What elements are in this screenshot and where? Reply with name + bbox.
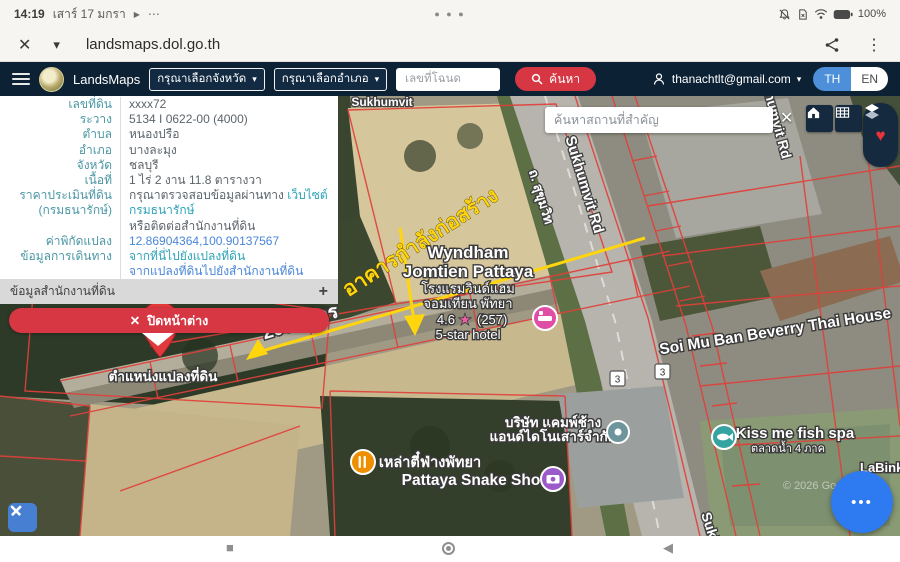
- poi-kiss-me-th: ตลาดน้ำ 4 ภาค: [751, 440, 825, 455]
- url-chevron-down-icon[interactable]: ▾: [53, 37, 60, 53]
- price-value: กรุณาตรวจสอบข้อมูลผ่านทาง เว็บไซต์กรมธนา…: [120, 188, 338, 234]
- field-value: หนองปรือ: [120, 127, 338, 142]
- field-label: เนื้อที่: [0, 173, 120, 188]
- land-office-section[interactable]: ข้อมูลสำนักงานที่ดิน +: [0, 279, 338, 304]
- field-value: ชลบุรี: [120, 158, 338, 173]
- person-icon: [652, 72, 666, 86]
- route-to-parcel-link[interactable]: จากที่นี่ไปยังแปลงที่ดิน: [129, 249, 245, 263]
- favorites-heart-icon[interactable]: ♥: [875, 127, 885, 144]
- grid-icon: [835, 105, 850, 120]
- price-label: ราคาประเมินที่ดิน (กรมธนารักษ์): [0, 188, 120, 234]
- bell-muted-icon: [778, 8, 791, 21]
- app-header: LandsMaps กรุณาเลือกจังหวัด ▾ กรุณาเลือก…: [0, 62, 900, 96]
- field-label: อำเภอ: [0, 143, 120, 158]
- status-bar: 14:19 เสาร์ 17 มกรา ▶ ⋯ ● ● ● 100%: [0, 0, 900, 28]
- camera-notch-dots: ● ● ●: [434, 9, 465, 19]
- play-icon: ▶: [134, 10, 140, 19]
- lang-en-button[interactable]: EN: [851, 67, 888, 91]
- home-nav-button[interactable]: [442, 542, 455, 555]
- field-value: 1 ไร่ 2 งาน 11.8 ตารางวา: [120, 173, 338, 188]
- parcel-info-body: เลขที่ดินxxxx72 ระวาง5134 I 0622-00 (400…: [0, 96, 338, 279]
- hotel-marker-icon: [533, 306, 557, 330]
- close-icon: ✕: [130, 313, 140, 328]
- ellipsis-icon: ⋯: [148, 7, 161, 21]
- company-marker-icon: [607, 421, 629, 443]
- poi-wyndham-th: โรงแรมวินด์แฮม: [421, 281, 515, 296]
- panel-callout-pointer: [142, 333, 174, 346]
- province-dropdown-label: กรุณาเลือกจังหวัด: [157, 70, 246, 88]
- coord-label: ค่าพิกัดแปลง: [0, 234, 120, 249]
- app-title: LandsMaps: [73, 72, 140, 87]
- lang-th-button[interactable]: TH: [813, 67, 851, 91]
- field-value: 5134 I 0622-00 (4000): [120, 112, 338, 127]
- tablet-screen: 14:19 เสาร์ 17 มกรา ▶ ⋯ ● ● ● 100% ✕ ▾ l…: [0, 0, 900, 562]
- account-email[interactable]: thanachtlt@gmail.com: [672, 72, 791, 86]
- spa-marker-icon: [712, 425, 736, 449]
- clock: 14:19: [14, 7, 45, 21]
- map-search-clear-icon[interactable]: ✕: [780, 108, 793, 128]
- close-panel-label: ปิดหน้าต่าง: [147, 311, 208, 331]
- travel-links: จากที่นี่ไปยังแปลงที่ดิน จากแปลงที่ดินไป…: [120, 249, 338, 279]
- star-icon: ★: [459, 312, 471, 327]
- map-more-button[interactable]: •••: [831, 471, 893, 533]
- parcel-info-panel: เลขที่ดินxxxx72 ระวาง5134 I 0622-00 (400…: [0, 96, 338, 346]
- language-toggle: TH EN: [813, 67, 888, 91]
- draw-tools-button[interactable]: [8, 503, 37, 532]
- map-grid-button[interactable]: [835, 105, 862, 132]
- price-text2: หรือติดต่อสำนักงานที่ดิน: [129, 219, 255, 233]
- browser-actions: ⋮: [824, 35, 882, 55]
- dol-logo: [39, 67, 64, 92]
- date-label: เสาร์ 17 มกรา: [53, 5, 126, 24]
- map-home-button[interactable]: [806, 105, 833, 132]
- chevron-down-icon: ▾: [375, 74, 380, 85]
- field-label: ระวาง: [0, 112, 120, 127]
- deed-number-input[interactable]: [396, 68, 500, 91]
- close-panel-button[interactable]: ✕ ปิดหน้าต่าง: [9, 308, 329, 333]
- battery-percent: 100%: [858, 8, 886, 20]
- poi-wyndham-type: 5-star hotel: [435, 327, 500, 342]
- share-icon[interactable]: [824, 37, 840, 53]
- draw-tools-icon: [8, 503, 24, 519]
- poi-wyndham-count: (257): [477, 312, 507, 327]
- layers-icon[interactable]: [863, 103, 881, 119]
- route-shield-number: 3: [660, 368, 666, 379]
- poi-wyndham: Jomtien Pattaya: [403, 262, 534, 281]
- field-value: xxxx72: [120, 97, 338, 112]
- field-value: บางละมุง: [120, 143, 338, 158]
- chevron-down-icon: ▾: [252, 74, 257, 85]
- poi-kiss-me: Kiss me fish spa: [736, 425, 855, 442]
- route-shield-number: 3: [615, 375, 621, 386]
- browser-bar: ✕ ▾ landsmaps.dol.go.th ⋮: [0, 28, 900, 62]
- battery-icon: [833, 9, 853, 20]
- poi-camp-chang: แอนด์ไดโนเสาร์จำกัด: [490, 427, 617, 444]
- road-label-top: Sukhumvit: [351, 96, 412, 109]
- pin-label: ตำแหน่งแปลงที่ดิน: [109, 366, 219, 384]
- sim-missing-icon: [796, 8, 809, 21]
- route-to-office-link[interactable]: จากแปลงที่ดินไปยังสำนักงานที่ดิน: [129, 264, 303, 278]
- home-icon: [806, 105, 821, 120]
- poi-wyndham-th: จอมเทียน พัทยา: [423, 296, 512, 311]
- url-text[interactable]: landsmaps.dol.go.th: [86, 36, 220, 53]
- poi-camp-chang: บริษัท แคมพ์ช้าง: [505, 414, 601, 430]
- field-label: เลขที่ดิน: [0, 97, 120, 112]
- close-tab-icon[interactable]: ✕: [18, 35, 31, 55]
- price-label-line1: ราคาประเมินที่ดิน: [19, 188, 112, 202]
- account-area: thanachtlt@gmail.com ▾ TH EN: [652, 67, 888, 91]
- map-layers-panel: ♥: [863, 103, 898, 167]
- price-text: กรุณาตรวจสอบข้อมูลผ่านทาง: [129, 188, 284, 202]
- status-icons: 100%: [778, 8, 886, 21]
- district-dropdown-label: กรุณาเลือกอำเภอ: [282, 70, 369, 88]
- poi-wyndham: Wyndham: [428, 243, 509, 262]
- land-office-section-label: ข้อมูลสำนักงานที่ดิน: [10, 282, 115, 301]
- browser-menu-icon[interactable]: ⋮: [866, 35, 882, 55]
- attraction-marker-icon: [541, 467, 565, 491]
- travel-label: ข้อมูลการเดินทาง: [0, 249, 120, 279]
- field-label: ตำบล: [0, 127, 120, 142]
- parcel-coordinates-link[interactable]: 12.86904364,100.90137567: [129, 234, 279, 248]
- field-label: จังหวัด: [0, 158, 120, 173]
- android-nav-bar: ■ ◀: [0, 536, 900, 562]
- poi-wyndham-rating: 4.6: [437, 312, 455, 327]
- district-dropdown[interactable]: กรุณาเลือกอำเภอ ▾: [274, 68, 387, 91]
- chevron-down-icon[interactable]: ▾: [797, 74, 802, 85]
- menu-icon[interactable]: [12, 73, 30, 85]
- search-button[interactable]: ค้นหา: [515, 67, 596, 91]
- map-search-input[interactable]: [545, 107, 773, 133]
- poi-snake-show: Pattaya Snake Show: [402, 472, 554, 489]
- back-button[interactable]: ◀: [663, 540, 673, 556]
- wifi-icon: [814, 8, 828, 20]
- recents-button[interactable]: ■: [226, 540, 234, 555]
- price-label-line2: (กรมธนารักษ์): [39, 203, 113, 217]
- search-button-label: ค้นหา: [549, 70, 580, 89]
- expand-plus-icon[interactable]: +: [319, 283, 328, 301]
- restaurant-marker-icon: [351, 450, 375, 474]
- search-icon: [531, 73, 543, 85]
- province-dropdown[interactable]: กรุณาเลือกจังหวัด ▾: [149, 68, 265, 91]
- map-canvas[interactable]: อาคารกำลังก่อสร้าง 200 เมตร Sukhumvit Rd…: [0, 96, 900, 536]
